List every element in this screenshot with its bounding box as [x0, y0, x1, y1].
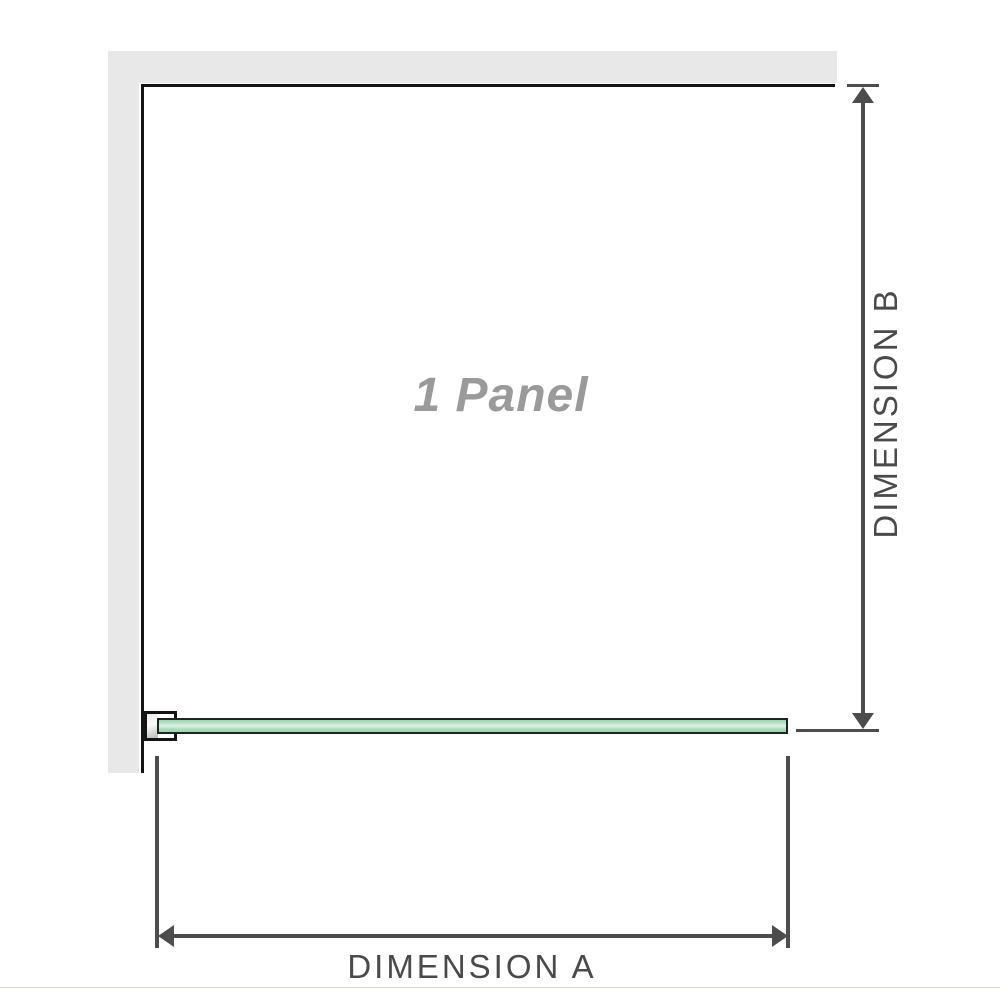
dimension-a-line	[168, 934, 778, 938]
dimension-b-line	[861, 95, 865, 717]
glass-panel	[157, 718, 788, 734]
dimension-a-extension-left	[155, 756, 159, 948]
arrow-down-icon	[852, 713, 874, 729]
arrow-right-icon	[772, 925, 788, 947]
dimension-a-extension-right	[786, 756, 790, 948]
shower-panel-diagram: 1 Panel DIMENSION B DIMENSION A	[0, 0, 1000, 1000]
footer-divider	[0, 987, 1000, 988]
dimension-b-tick-bottom	[796, 729, 879, 732]
wall-top	[108, 51, 837, 83]
arrow-up-icon	[852, 87, 874, 103]
arrow-left-icon	[158, 925, 174, 947]
panel-outline-top	[142, 84, 835, 87]
dimension-a-label: DIMENSION A	[272, 947, 672, 987]
wall-left	[108, 51, 139, 773]
dimension-b-label: DIMENSION B	[866, 213, 906, 613]
panel-label: 1 Panel	[351, 368, 651, 423]
panel-outline-left	[141, 84, 144, 773]
